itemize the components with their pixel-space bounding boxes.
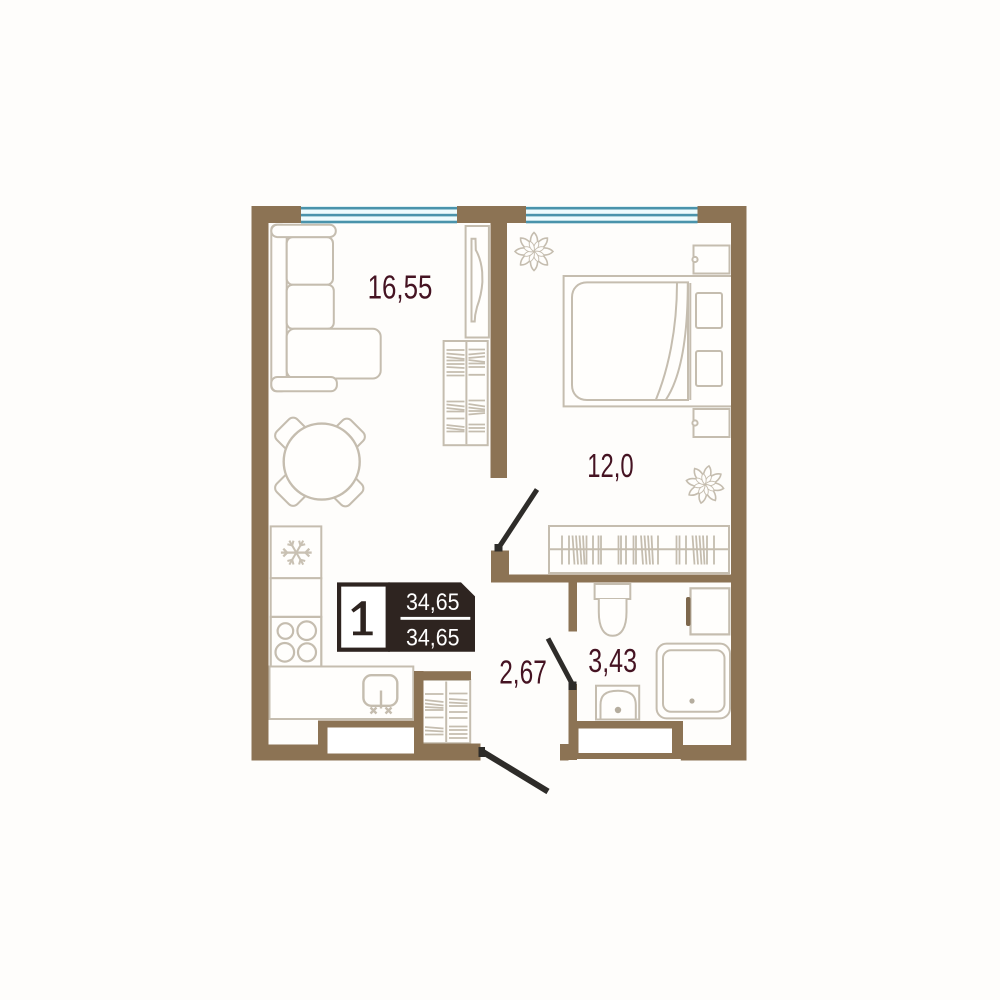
svg-text:12,0: 12,0 [587, 448, 633, 485]
svg-text:16,55: 16,55 [368, 270, 433, 307]
svg-text:34,65: 34,65 [406, 625, 460, 652]
svg-text:3,43: 3,43 [588, 643, 637, 680]
svg-text:34,65: 34,65 [406, 589, 460, 616]
svg-text:2,67: 2,67 [499, 655, 547, 692]
